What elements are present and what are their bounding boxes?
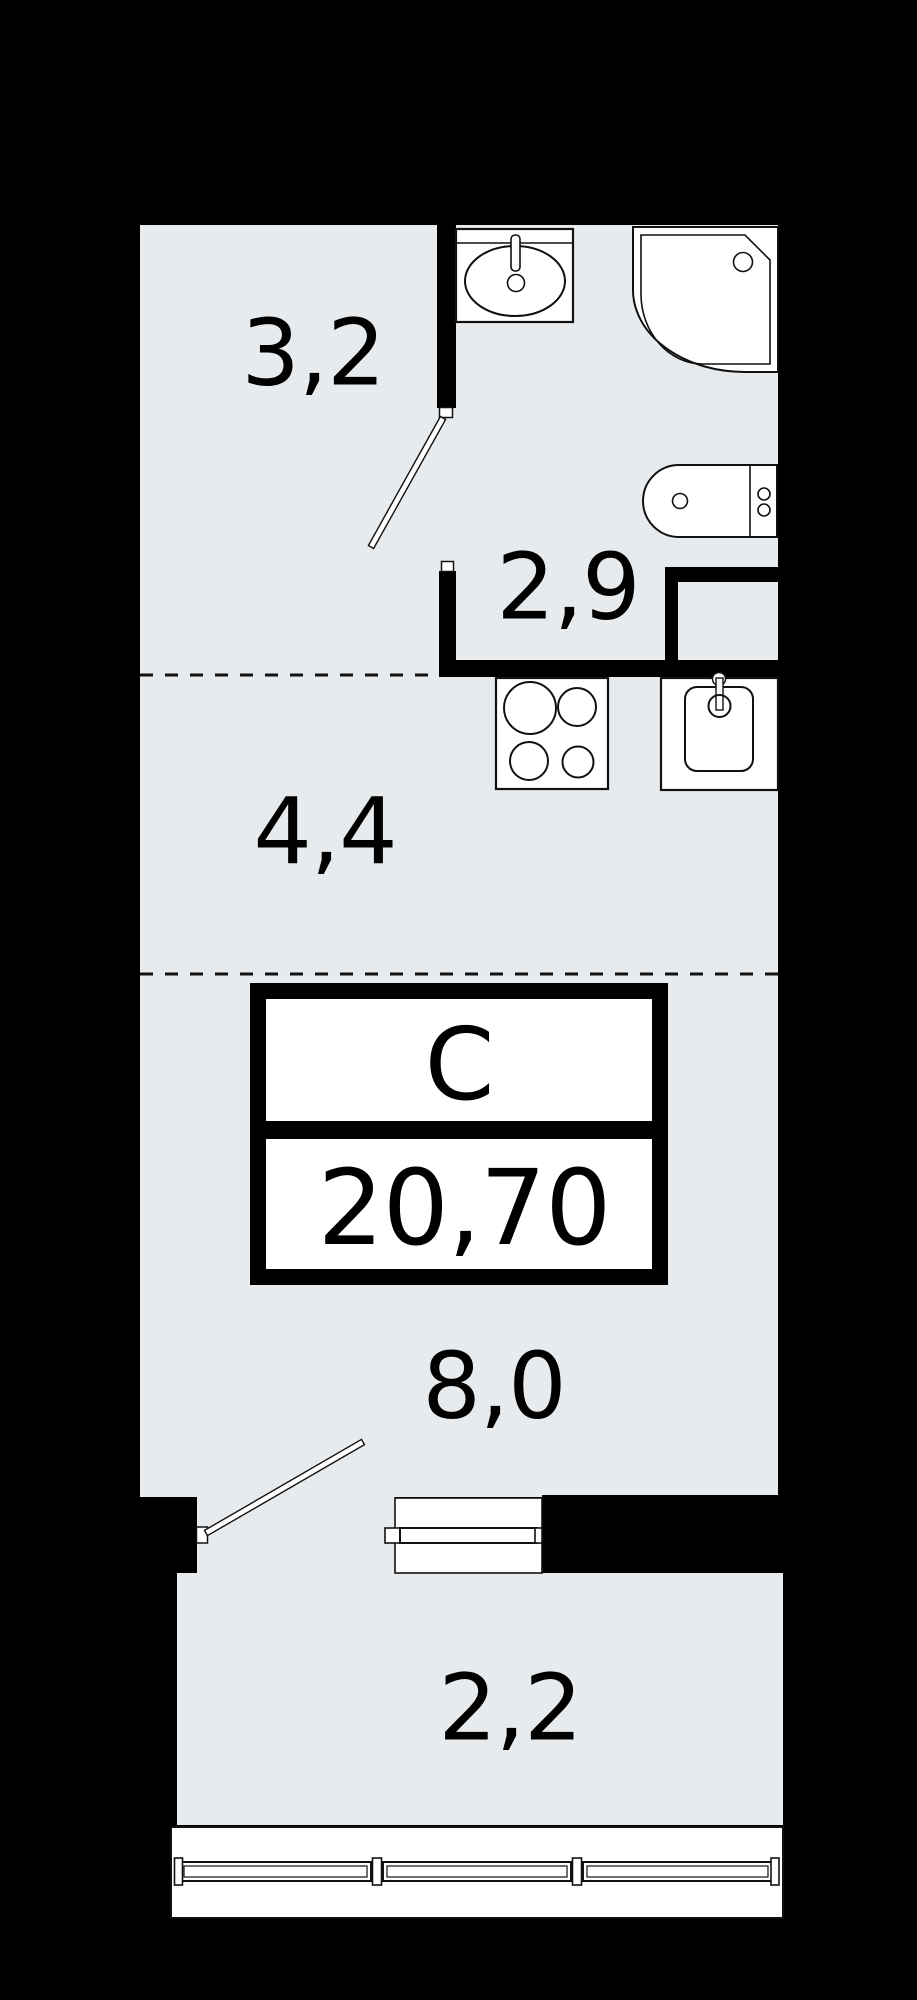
washing-machine-icon [643,465,777,537]
bathroom-sink-icon [456,229,573,322]
wall-duct-top [665,567,790,582]
stamp-type-label: С [425,1015,494,1115]
kitchen-sink-icon [661,673,778,791]
room-label-balcony: 2,2 [438,1663,581,1755]
wall-balcony-right-block [542,1495,790,1573]
balcony-window-icon [385,1498,542,1573]
room-label-kitchen: 4,4 [253,787,396,879]
balcony-glazing-icon [171,1827,783,1918]
stove-icon [496,678,608,789]
wall-balcony-left-block [140,1497,197,1573]
main-floor [140,225,778,1497]
wall-bathroom-bottom [439,660,790,677]
wall-hallway-bathroom [437,225,456,408]
room-label-living-room: 8,0 [422,1341,565,1433]
stamp-area-value: 20,70 [318,1156,611,1260]
floor-plan: 3,2 2,9 4,4 8,0 2,2 С 20,70 [0,0,917,2000]
balcony-door-passage-floor [197,1497,395,1573]
room-label-bathroom: 2,9 [496,542,639,634]
room-label-hallway: 3,2 [241,308,384,400]
wall-duct-left [665,567,678,677]
